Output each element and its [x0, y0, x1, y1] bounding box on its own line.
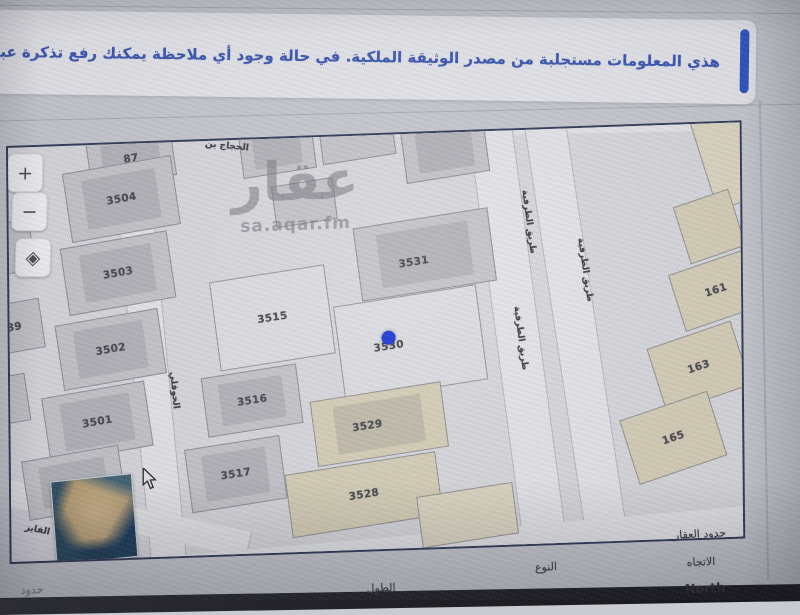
- parcel-489[interactable]: 489: [6, 298, 46, 358]
- info-banner: ؟ هذي المعلومات مستجلبة من مصدر الوثيقة …: [0, 10, 757, 105]
- parcel[interactable]: [317, 120, 396, 165]
- parcel-165[interactable]: 165: [619, 391, 727, 485]
- parcel[interactable]: [237, 120, 317, 179]
- parcel-3517[interactable]: 3517: [184, 435, 287, 513]
- parcel-number: 165: [661, 428, 686, 447]
- parcel-number: 161: [703, 281, 728, 300]
- screen-photo: { "banner": { "text": "هذي المعلومات مست…: [0, 0, 800, 600]
- parcel[interactable]: [271, 177, 338, 228]
- parcel-number: 489: [6, 320, 23, 336]
- parcel-number: 163: [686, 358, 711, 377]
- parcel-number: 3528: [348, 486, 380, 503]
- building-footprint: [415, 126, 475, 174]
- parcel-3530[interactable]: 3530: [333, 284, 488, 401]
- mouse-cursor: [140, 468, 158, 490]
- street-label: الفايز: [24, 523, 51, 538]
- direction-label: الاتجاه: [686, 555, 715, 569]
- parcel[interactable]: [6, 373, 31, 430]
- map-world: 8735043503350235014893515351635173531353…: [8, 122, 740, 148]
- building-footprint: [250, 125, 303, 169]
- parcel-3515[interactable]: 3515: [209, 264, 336, 371]
- street-label: الحوقلي: [167, 371, 181, 409]
- type-label: النوع: [535, 560, 558, 574]
- parcel-number: 3515: [257, 309, 289, 326]
- banner-accent-bar: [740, 29, 750, 93]
- parcel-3516[interactable]: 3516: [201, 363, 304, 437]
- minimap-inset[interactable]: [50, 473, 138, 564]
- borders-partial-label: حدود: [20, 583, 43, 597]
- banner-text: هذي المعلومات مستجلبة من مصدر الوثيقة ال…: [0, 42, 720, 71]
- locate-button[interactable]: ◈: [14, 238, 51, 277]
- zoom-in-button[interactable]: +: [7, 153, 44, 192]
- zoom-out-button[interactable]: −: [11, 192, 48, 231]
- parcel-161[interactable]: 161: [668, 249, 745, 333]
- direction-value: North: [685, 580, 726, 597]
- photo-bottom-shadow: [0, 584, 800, 615]
- parcel-map[interactable]: 8735043503350235014893515351635173531353…: [6, 120, 745, 564]
- property-borders-label: حدود العقار: [674, 526, 727, 541]
- page-edge-line: [759, 100, 769, 580]
- banner-divider: [0, 103, 800, 121]
- length-label: الطول: [366, 581, 396, 595]
